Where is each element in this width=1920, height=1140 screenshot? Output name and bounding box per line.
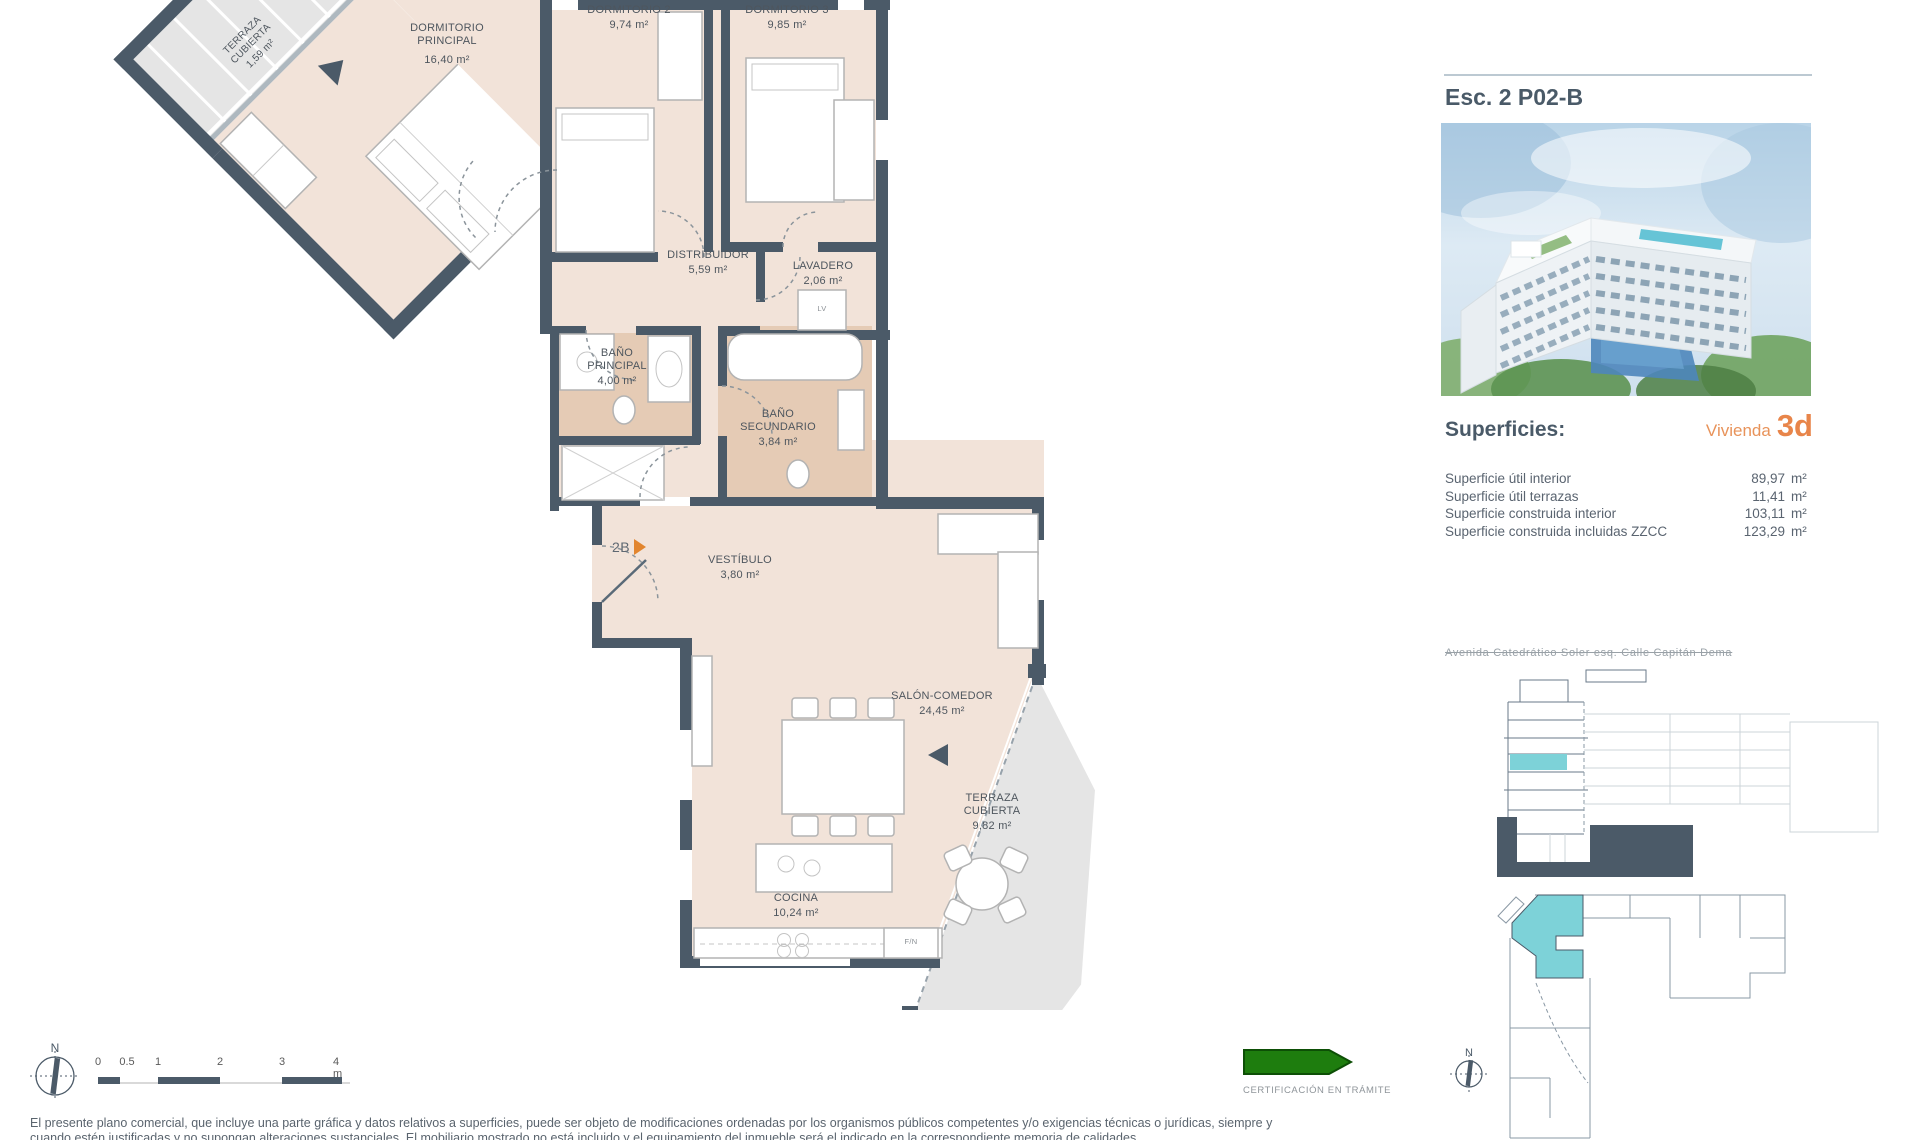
entry-marker: 2B [612, 539, 646, 555]
room-label-bano-principal: BAÑO PRINCIPAL 4,00 m² [587, 347, 647, 388]
certification-arrow [1243, 1047, 1355, 1077]
superficies-heading: Superficies: [1445, 418, 1565, 442]
superficies-row: Superficie construida incluidas ZZCC 123… [1445, 523, 1813, 541]
plan-sheet: TERRAZA CUBIERTA 1,59 m² DORMITORIO PRIN… [0, 0, 1920, 1140]
floorplan-drawing [0, 0, 1140, 1010]
superficies-row: Superficie útil terrazas 11,41 m² [1445, 488, 1813, 506]
scale-tick: 2 [217, 1056, 223, 1068]
superficies-row: Superficie construida interior 103,11 m² [1445, 505, 1813, 523]
scale-tick: 0 [95, 1056, 101, 1068]
compass-north-label: N [1465, 1047, 1473, 1059]
entry-code: 2B [612, 539, 630, 555]
scale-tick: 1 [155, 1056, 161, 1068]
room-label-dormitorio-principal: DORMITORIO PRINCIPAL 16,40 m² [410, 22, 484, 67]
room-label-cocina: COCINA 10,24 m² [773, 892, 818, 920]
room-label-distribuidor: DISTRIBUIDOR 5,59 m² [667, 249, 749, 277]
vivienda-code: 3d [1777, 408, 1813, 444]
panel-divider [1444, 74, 1812, 76]
room-label-vestibulo: VESTÍBULO 3,80 m² [708, 554, 772, 582]
entry-arrow-icon [634, 539, 646, 555]
mini-key-plan: N [1440, 878, 1890, 1140]
superficies-table: Superficie útil interior 89,97 m² Superf… [1445, 470, 1813, 540]
room-label-lavadero: LAVADERO 2,06 m² [793, 260, 853, 288]
room-label-salon-comedor: SALÓN-COMEDOR 24,45 m² [891, 690, 993, 718]
compass-keyplan: N [1450, 1047, 1488, 1093]
location-caption: Avenida Catedrático Soler esq. Calle Cap… [1445, 647, 1801, 659]
scale-tick: 0.5 [119, 1056, 134, 1068]
scale-segment [158, 1077, 220, 1084]
page-title: Esc. 2 P02-B [1445, 84, 1583, 111]
washer-label: LV [817, 304, 826, 313]
scale-bar: 0 0.5 1 2 3 4 m [90, 1056, 360, 1092]
superficies-header: Superficies: Vivienda 3d [1445, 408, 1813, 444]
vivienda-label: Vivienda [1706, 421, 1771, 441]
fridge-label: F/N [905, 937, 918, 946]
scale-segment [98, 1077, 120, 1084]
room-label-terraza-sur: TERRAZA CUBIERTA 9,82 m² [964, 792, 1021, 833]
certification-label: CERTIFICACIÓN EN TRÁMITE [1243, 1085, 1391, 1096]
room-label-dormitorio-2: DORMITORIO 2 9,74 m² [587, 4, 670, 32]
room-label-dormitorio-3: DORMITORIO 3 9,85 m² [745, 4, 828, 32]
disclaimer-line-2: cuando estén justificadas y no supongan … [30, 1131, 1140, 1140]
scale-segment [282, 1077, 342, 1084]
scale-tick: 3 [279, 1056, 285, 1068]
mini-section-diagram [1490, 662, 1890, 877]
superficies-row: Superficie útil interior 89,97 m² [1445, 470, 1813, 488]
disclaimer-line-1: El presente plano comercial, que incluye… [30, 1116, 1272, 1130]
building-render [1441, 123, 1811, 396]
room-label-bano-secundario: BAÑO SECUNDARIO 3,84 m² [740, 408, 816, 449]
compass-main: N [26, 1038, 86, 1102]
